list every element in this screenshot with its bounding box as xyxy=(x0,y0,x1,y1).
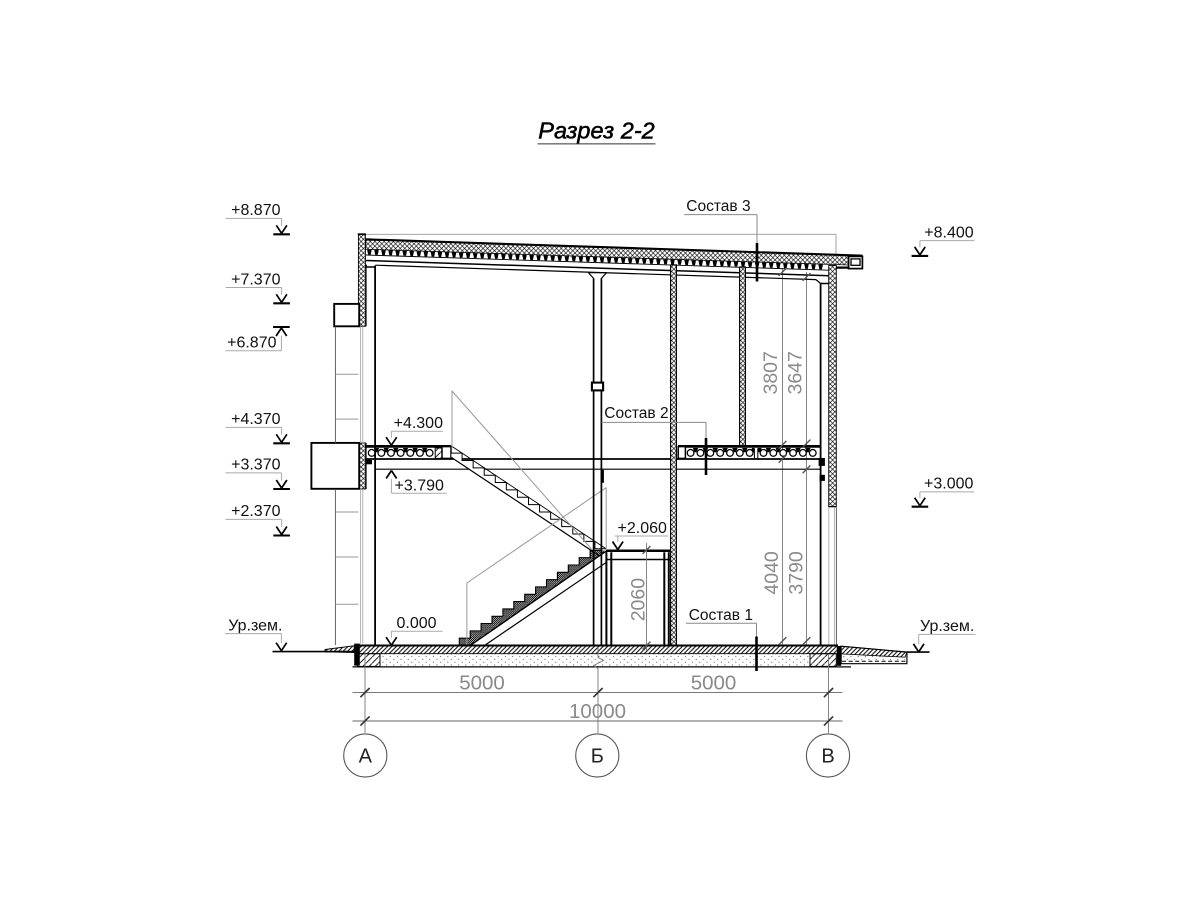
svg-text:+7.370: +7.370 xyxy=(231,271,280,288)
svg-text:Состав 1: Состав 1 xyxy=(689,607,753,624)
svg-text:0.000: 0.000 xyxy=(397,615,437,632)
svg-text:5000: 5000 xyxy=(459,672,505,695)
svg-text:4040: 4040 xyxy=(761,551,783,595)
svg-text:+8.400: +8.400 xyxy=(924,224,973,241)
svg-text:3790: 3790 xyxy=(785,551,807,595)
svg-text:+4.370: +4.370 xyxy=(231,411,280,428)
svg-text:+6.870: +6.870 xyxy=(227,335,276,352)
svg-text:+3.370: +3.370 xyxy=(231,457,280,474)
svg-text:3647: 3647 xyxy=(784,351,806,394)
svg-text:Б: Б xyxy=(591,746,604,768)
svg-text:+2.370: +2.370 xyxy=(231,503,280,520)
svg-text:5000: 5000 xyxy=(691,672,737,695)
svg-text:А: А xyxy=(359,746,373,768)
svg-text:10000: 10000 xyxy=(569,700,626,723)
svg-text:+3.000: +3.000 xyxy=(924,476,973,493)
svg-text:3807: 3807 xyxy=(760,351,782,394)
svg-text:+2.060: +2.060 xyxy=(618,520,667,537)
svg-text:В: В xyxy=(821,746,834,768)
svg-text:Состав 2: Состав 2 xyxy=(604,405,668,422)
svg-text:Разрез 2-2: Разрез 2-2 xyxy=(538,118,654,144)
svg-text:Ур.зем.: Ур.зем. xyxy=(920,618,974,635)
svg-text:+3.790: +3.790 xyxy=(395,478,444,495)
svg-text:Состав 3: Состав 3 xyxy=(686,198,750,215)
svg-text:Ур.зем.: Ур.зем. xyxy=(228,617,282,634)
svg-text:+8.870: +8.870 xyxy=(231,202,280,219)
svg-text:+4.300: +4.300 xyxy=(394,415,443,432)
svg-text:2060: 2060 xyxy=(628,578,650,622)
